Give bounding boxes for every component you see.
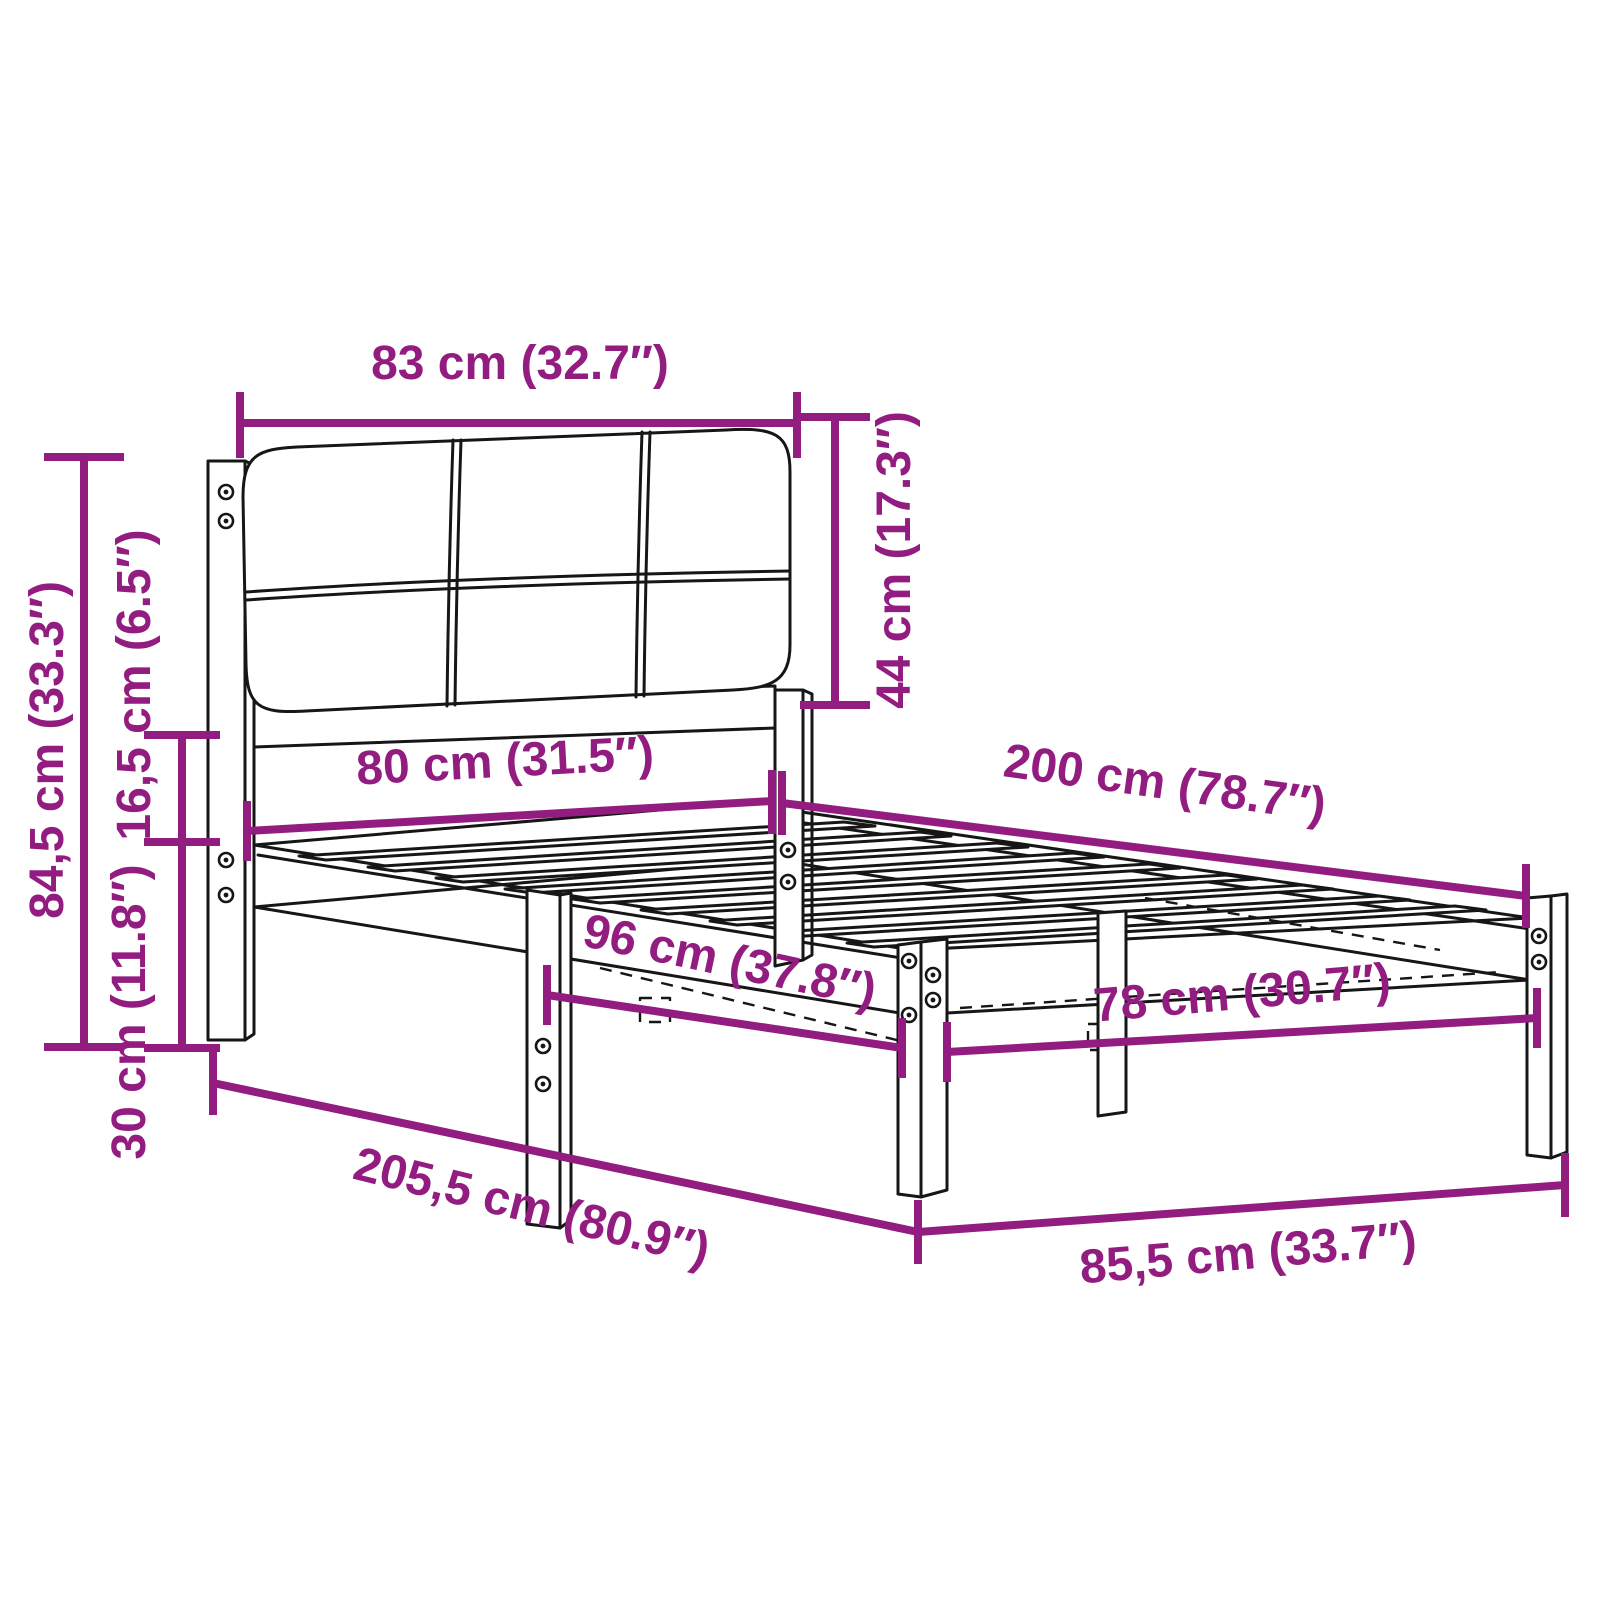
dimension-inner-width-head: 80 cm (31.5″) (247, 727, 772, 861)
headboard-cushion (243, 429, 790, 711)
dimension-label-total-width: 85,5 cm (33.7″) (1078, 1212, 1419, 1294)
dimension-label-leg-height: 30 cm (11.8″) (103, 864, 156, 1159)
dimension-rail-gap-height: 16,5 cm (6.5″) (108, 529, 220, 842)
dimension-label-headboard-width: 83 cm (32.7″) (371, 337, 669, 390)
dimension-headboard-height: 44 cm (17.3″) (800, 411, 921, 709)
bed-dimension-diagram: 83 cm (32.7″)44 cm (17.3″)84,5 cm (33.3″… (0, 0, 1600, 1600)
dimension-leg-height: 30 cm (11.8″) (103, 842, 220, 1160)
dimension-total-width: 85,5 cm (33.7″) (918, 1153, 1565, 1294)
dimension-label-total-height: 84,5 cm (33.3″) (21, 581, 74, 919)
dimension-label-rail-gap-height: 16,5 cm (6.5″) (108, 529, 161, 840)
dimension-label-inner-length: 200 cm (78.7″) (1000, 734, 1329, 832)
diagram-canvas: 83 cm (32.7″)44 cm (17.3″)84,5 cm (33.3″… (0, 0, 1600, 1600)
mid-near-leg (527, 890, 571, 1228)
dimension-label-headboard-height: 44 cm (17.3″) (868, 411, 921, 709)
dimension-label-inner-width-foot: 78 cm (30.7″) (1091, 954, 1392, 1033)
dimension-inner-width-foot: 78 cm (30.7″) (947, 954, 1537, 1082)
